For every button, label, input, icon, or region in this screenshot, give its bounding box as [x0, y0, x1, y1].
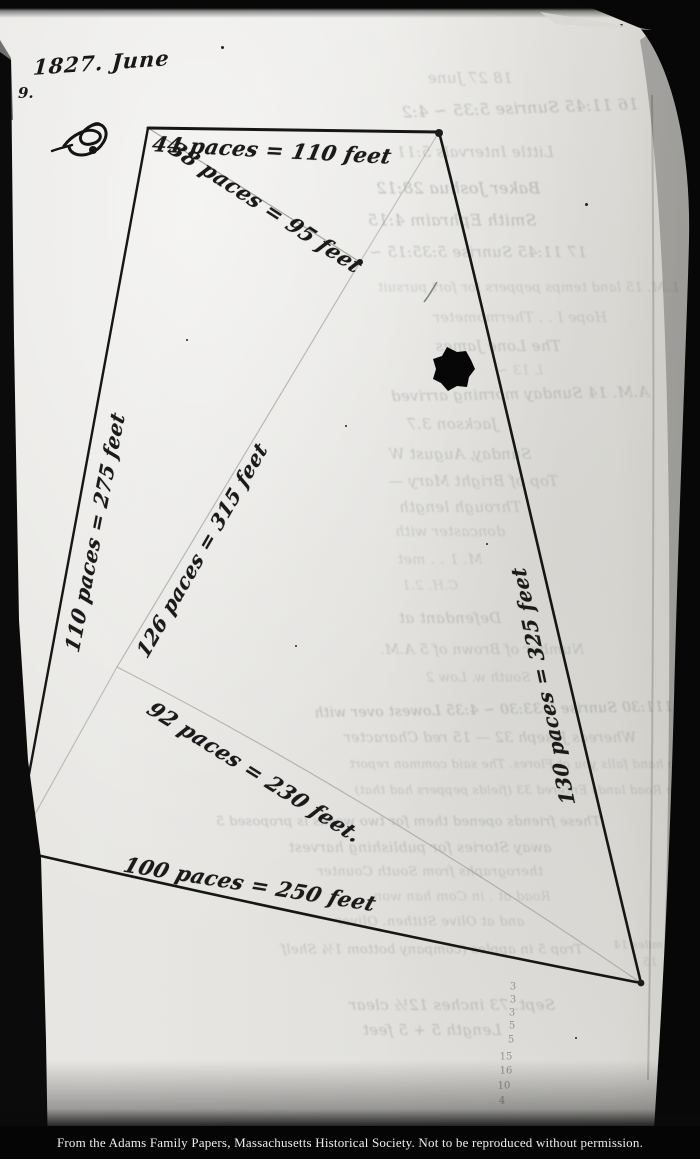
- measurement-labels-layer: 44 paces = 110 feet38 paces = 95 feet110…: [0, 0, 700, 1159]
- measurement-label: 130 paces = 325 feet: [506, 567, 581, 805]
- ink-speck: [575, 1037, 577, 1039]
- measurement-label: 126 paces = 315 feet: [132, 437, 272, 662]
- measurement-label: 110 paces = 275 feet: [60, 409, 129, 655]
- measurement-label: 100 paces = 250 feet: [121, 852, 380, 916]
- ink-speck: [345, 425, 347, 427]
- ink-speck: [295, 645, 297, 647]
- ink-speck: [620, 24, 623, 27]
- caption-bar: From the Adams Family Papers, Massachuse…: [0, 1126, 700, 1159]
- archive-caption: From the Adams Family Papers, Massachuse…: [57, 1135, 643, 1151]
- measurement-label: 92 paces = 230 feet.: [142, 697, 368, 847]
- ink-speck: [585, 203, 588, 206]
- photo-border-top: [0, 0, 700, 18]
- ink-speck: [221, 46, 224, 49]
- ink-speck: [186, 339, 188, 341]
- photo-bottom-shadow: [0, 1060, 700, 1130]
- ink-speck: [486, 543, 488, 545]
- archival-photo: 18 27 June16 11:45 Sunrise 5:35 ~ 4:2Lit…: [0, 0, 700, 1159]
- page-number: 9.: [18, 84, 34, 102]
